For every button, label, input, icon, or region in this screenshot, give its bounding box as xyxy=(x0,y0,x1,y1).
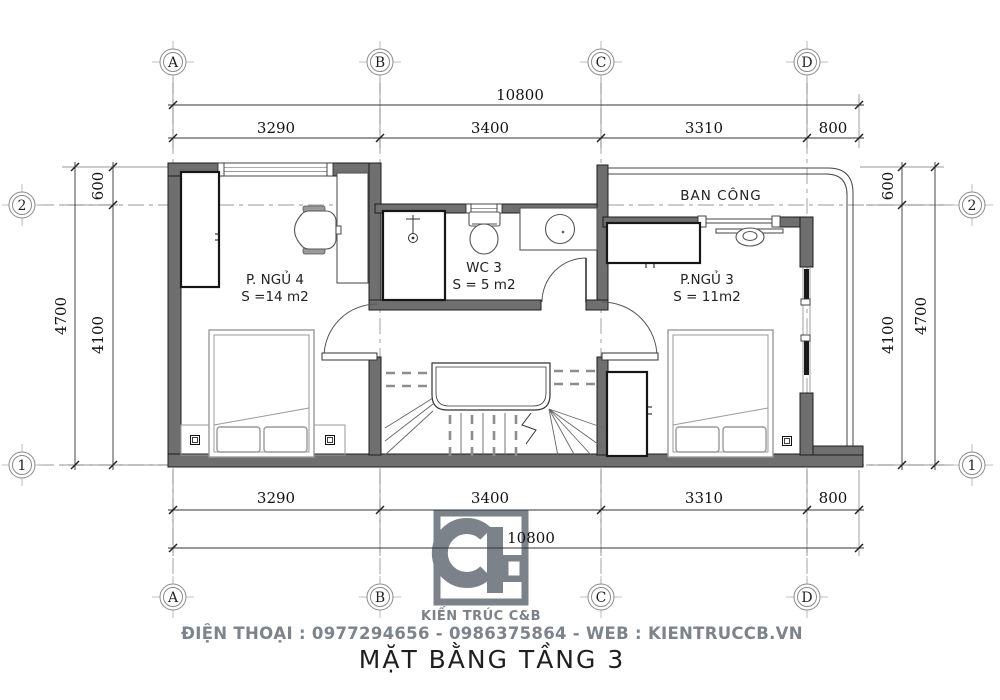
bubble-label: A xyxy=(167,590,179,606)
symbol-outer xyxy=(783,437,792,446)
label-bedroom4-name: P. NGỦ 4 xyxy=(246,269,304,288)
pillow xyxy=(264,427,307,452)
bubble-label: D xyxy=(801,590,812,606)
window-cap xyxy=(801,335,810,341)
dim-seg-balcony-top: 800 xyxy=(819,119,848,137)
dim-seg-balcony-bottom: 800 xyxy=(819,489,848,507)
grid-bubble-B-bottom: B xyxy=(359,576,401,618)
grid-bubble-D-top: D xyxy=(786,41,828,83)
wardrobe-bedroom4 xyxy=(181,172,219,287)
dim-balcony-depth-left: 600 xyxy=(89,172,107,201)
sink-drain xyxy=(562,231,565,234)
bubble-label: 2 xyxy=(18,198,27,214)
bubble-label: B xyxy=(375,55,385,71)
logo-letter-b-hole xyxy=(509,562,520,576)
dim-seg-ab-bottom: 3290 xyxy=(257,489,295,507)
grid-bubble-C-bottom: C xyxy=(580,576,622,618)
label-bedroom4-area: S =14 m2 xyxy=(241,289,308,305)
dimensions-top: 10800 3290 3400 3310 800 xyxy=(168,76,864,148)
grid-bubble-C-top: C xyxy=(580,41,622,83)
spotlight-symbol xyxy=(783,437,792,446)
floor-plan-canvas: KIẾN TRÚC C&B 10800 3290 3400 3310 800 3… xyxy=(0,0,1000,700)
sliding-door-tracks xyxy=(703,219,777,223)
chair-seat xyxy=(299,211,336,249)
sliding-door-balcony xyxy=(698,216,780,227)
door-swing-arc xyxy=(542,258,586,302)
bed-bedroom4 xyxy=(209,330,314,457)
window-cap xyxy=(801,299,810,305)
dim-seg-ab-top: 3290 xyxy=(257,119,295,137)
pillow xyxy=(217,427,260,452)
dim-total-width-bottom: 10800 xyxy=(507,529,555,547)
dim-seg-bc-bottom: 3400 xyxy=(471,489,509,507)
symbol-outer xyxy=(326,436,335,445)
floor-plan-page: KIẾN TRÚC C&B 10800 3290 3400 3310 800 3… xyxy=(0,0,1000,700)
wall-balcony-bottom xyxy=(806,446,863,455)
grid-bubble-D-bottom: D xyxy=(786,576,828,618)
chair-tab xyxy=(336,226,341,234)
dim-main-depth-right: 4100 xyxy=(879,316,897,354)
grid-bubble-A-bottom: A xyxy=(152,576,194,618)
bedroom4-furniture xyxy=(181,172,368,457)
window-bedroom3-right xyxy=(801,267,810,393)
spotlight-symbol xyxy=(191,436,200,445)
window-end-post xyxy=(327,163,333,176)
grid-bubble-1-right: 1 xyxy=(951,444,993,486)
door-swing-arc xyxy=(324,304,377,357)
door-leaf xyxy=(322,353,377,360)
stair-well-outer xyxy=(432,363,550,410)
drawing-title: MẶT BẰNG TẦNG 3 xyxy=(359,642,625,674)
grid-bubble-A-top: A xyxy=(152,41,194,83)
dim-seg-cd-bottom: 3310 xyxy=(685,489,723,507)
bubble-label: 1 xyxy=(18,458,27,474)
wall-wc-bottom-stub xyxy=(586,300,608,310)
label-wc3-name: WC 3 xyxy=(466,260,502,276)
door-swing-arc xyxy=(602,302,657,357)
door-bedroom3 xyxy=(602,302,658,360)
door-leaf xyxy=(602,353,658,360)
grid-bubble-1-left: 1 xyxy=(2,444,44,486)
bubble-label: B xyxy=(375,590,385,606)
label-bedroom3-area: S = 11m2 xyxy=(673,289,740,305)
shower-rose-center xyxy=(412,237,415,240)
dimensions-left: 4700 600 4100 xyxy=(52,162,168,470)
spotlight-symbol xyxy=(326,436,335,445)
wardrobe-bedroom3 xyxy=(607,223,700,263)
bedroom3-furniture xyxy=(607,223,792,457)
desk-chair xyxy=(295,206,342,254)
grid-bubble-2-right: 2 xyxy=(951,184,993,226)
bubble-label: D xyxy=(801,55,812,71)
sink-icon xyxy=(520,208,597,250)
stair-winder-left xyxy=(385,398,433,455)
contact-line: ĐIỆN THOẠI : 0977294656 - 0986375864 - W… xyxy=(181,623,803,643)
dim-seg-bc-top: 3400 xyxy=(471,119,509,137)
stair-break-line xyxy=(522,413,536,444)
logo-company-name: KIẾN TRÚC C&B xyxy=(421,607,541,624)
door-bedroom4 xyxy=(322,304,377,360)
wall-bedroom4-right-upper xyxy=(369,163,381,306)
bubble-label: 1 xyxy=(968,458,977,474)
dim-total-width-top: 10800 xyxy=(496,86,544,104)
fan-hub xyxy=(743,232,757,241)
bubble-label: A xyxy=(167,55,179,71)
toilet-bowl xyxy=(470,224,498,254)
stair-winder-right xyxy=(549,409,604,456)
sink-basin xyxy=(546,215,575,244)
footer: ĐIỆN THOẠI : 0977294656 - 0986375864 - W… xyxy=(181,623,803,674)
door-wc xyxy=(542,258,586,302)
grid-bubble-2-left: 2 xyxy=(2,184,44,226)
symbol-outer xyxy=(191,436,200,445)
bubble-label: C xyxy=(596,590,607,606)
bubble-label: C xyxy=(596,55,607,71)
dim-main-depth-left: 4100 xyxy=(89,316,107,354)
stair-tread-lines xyxy=(461,413,505,456)
window-casement-lower xyxy=(804,341,809,375)
dim-seg-cd-top: 3310 xyxy=(685,119,723,137)
pillow xyxy=(723,427,766,452)
sliding-door-end xyxy=(772,216,780,227)
dim-total-depth-left: 4700 xyxy=(52,297,70,335)
toilet-icon xyxy=(469,212,500,254)
window-frame xyxy=(218,163,333,176)
window-casement-upper xyxy=(804,269,809,299)
wall-bedroom4-right-lower xyxy=(369,357,381,455)
label-balcony: BAN CÔNG xyxy=(680,186,762,204)
cabinet-bedroom3 xyxy=(607,372,647,456)
wall-bedroom3-right-upper xyxy=(800,217,813,267)
wall-wc-bottom xyxy=(369,300,541,310)
dimensions-right: 600 4100 4700 xyxy=(860,162,944,470)
grid-bubble-B-top: B xyxy=(359,41,401,83)
label-bedroom3-name: P.NGỦ 3 xyxy=(680,269,734,288)
dim-balcony-depth-right: 600 xyxy=(879,172,897,201)
logo-letter-b-stem xyxy=(487,527,503,593)
pillow xyxy=(676,427,719,452)
bubble-label: 2 xyxy=(968,198,977,214)
chair-back xyxy=(295,215,302,245)
window-bedroom4-top xyxy=(218,163,333,176)
wall-bedroom3-right-lower xyxy=(800,393,813,455)
staircase xyxy=(385,363,604,456)
desk xyxy=(337,173,368,283)
label-wc3-area: S = 5 m2 xyxy=(452,277,515,293)
shower-enclosure xyxy=(383,211,445,300)
dim-total-depth-right: 4700 xyxy=(912,297,930,335)
extension-lines xyxy=(62,167,168,465)
ceiling-fan-icon xyxy=(716,228,783,246)
bed-bedroom3 xyxy=(668,330,773,457)
wall-exterior-left xyxy=(168,163,181,467)
